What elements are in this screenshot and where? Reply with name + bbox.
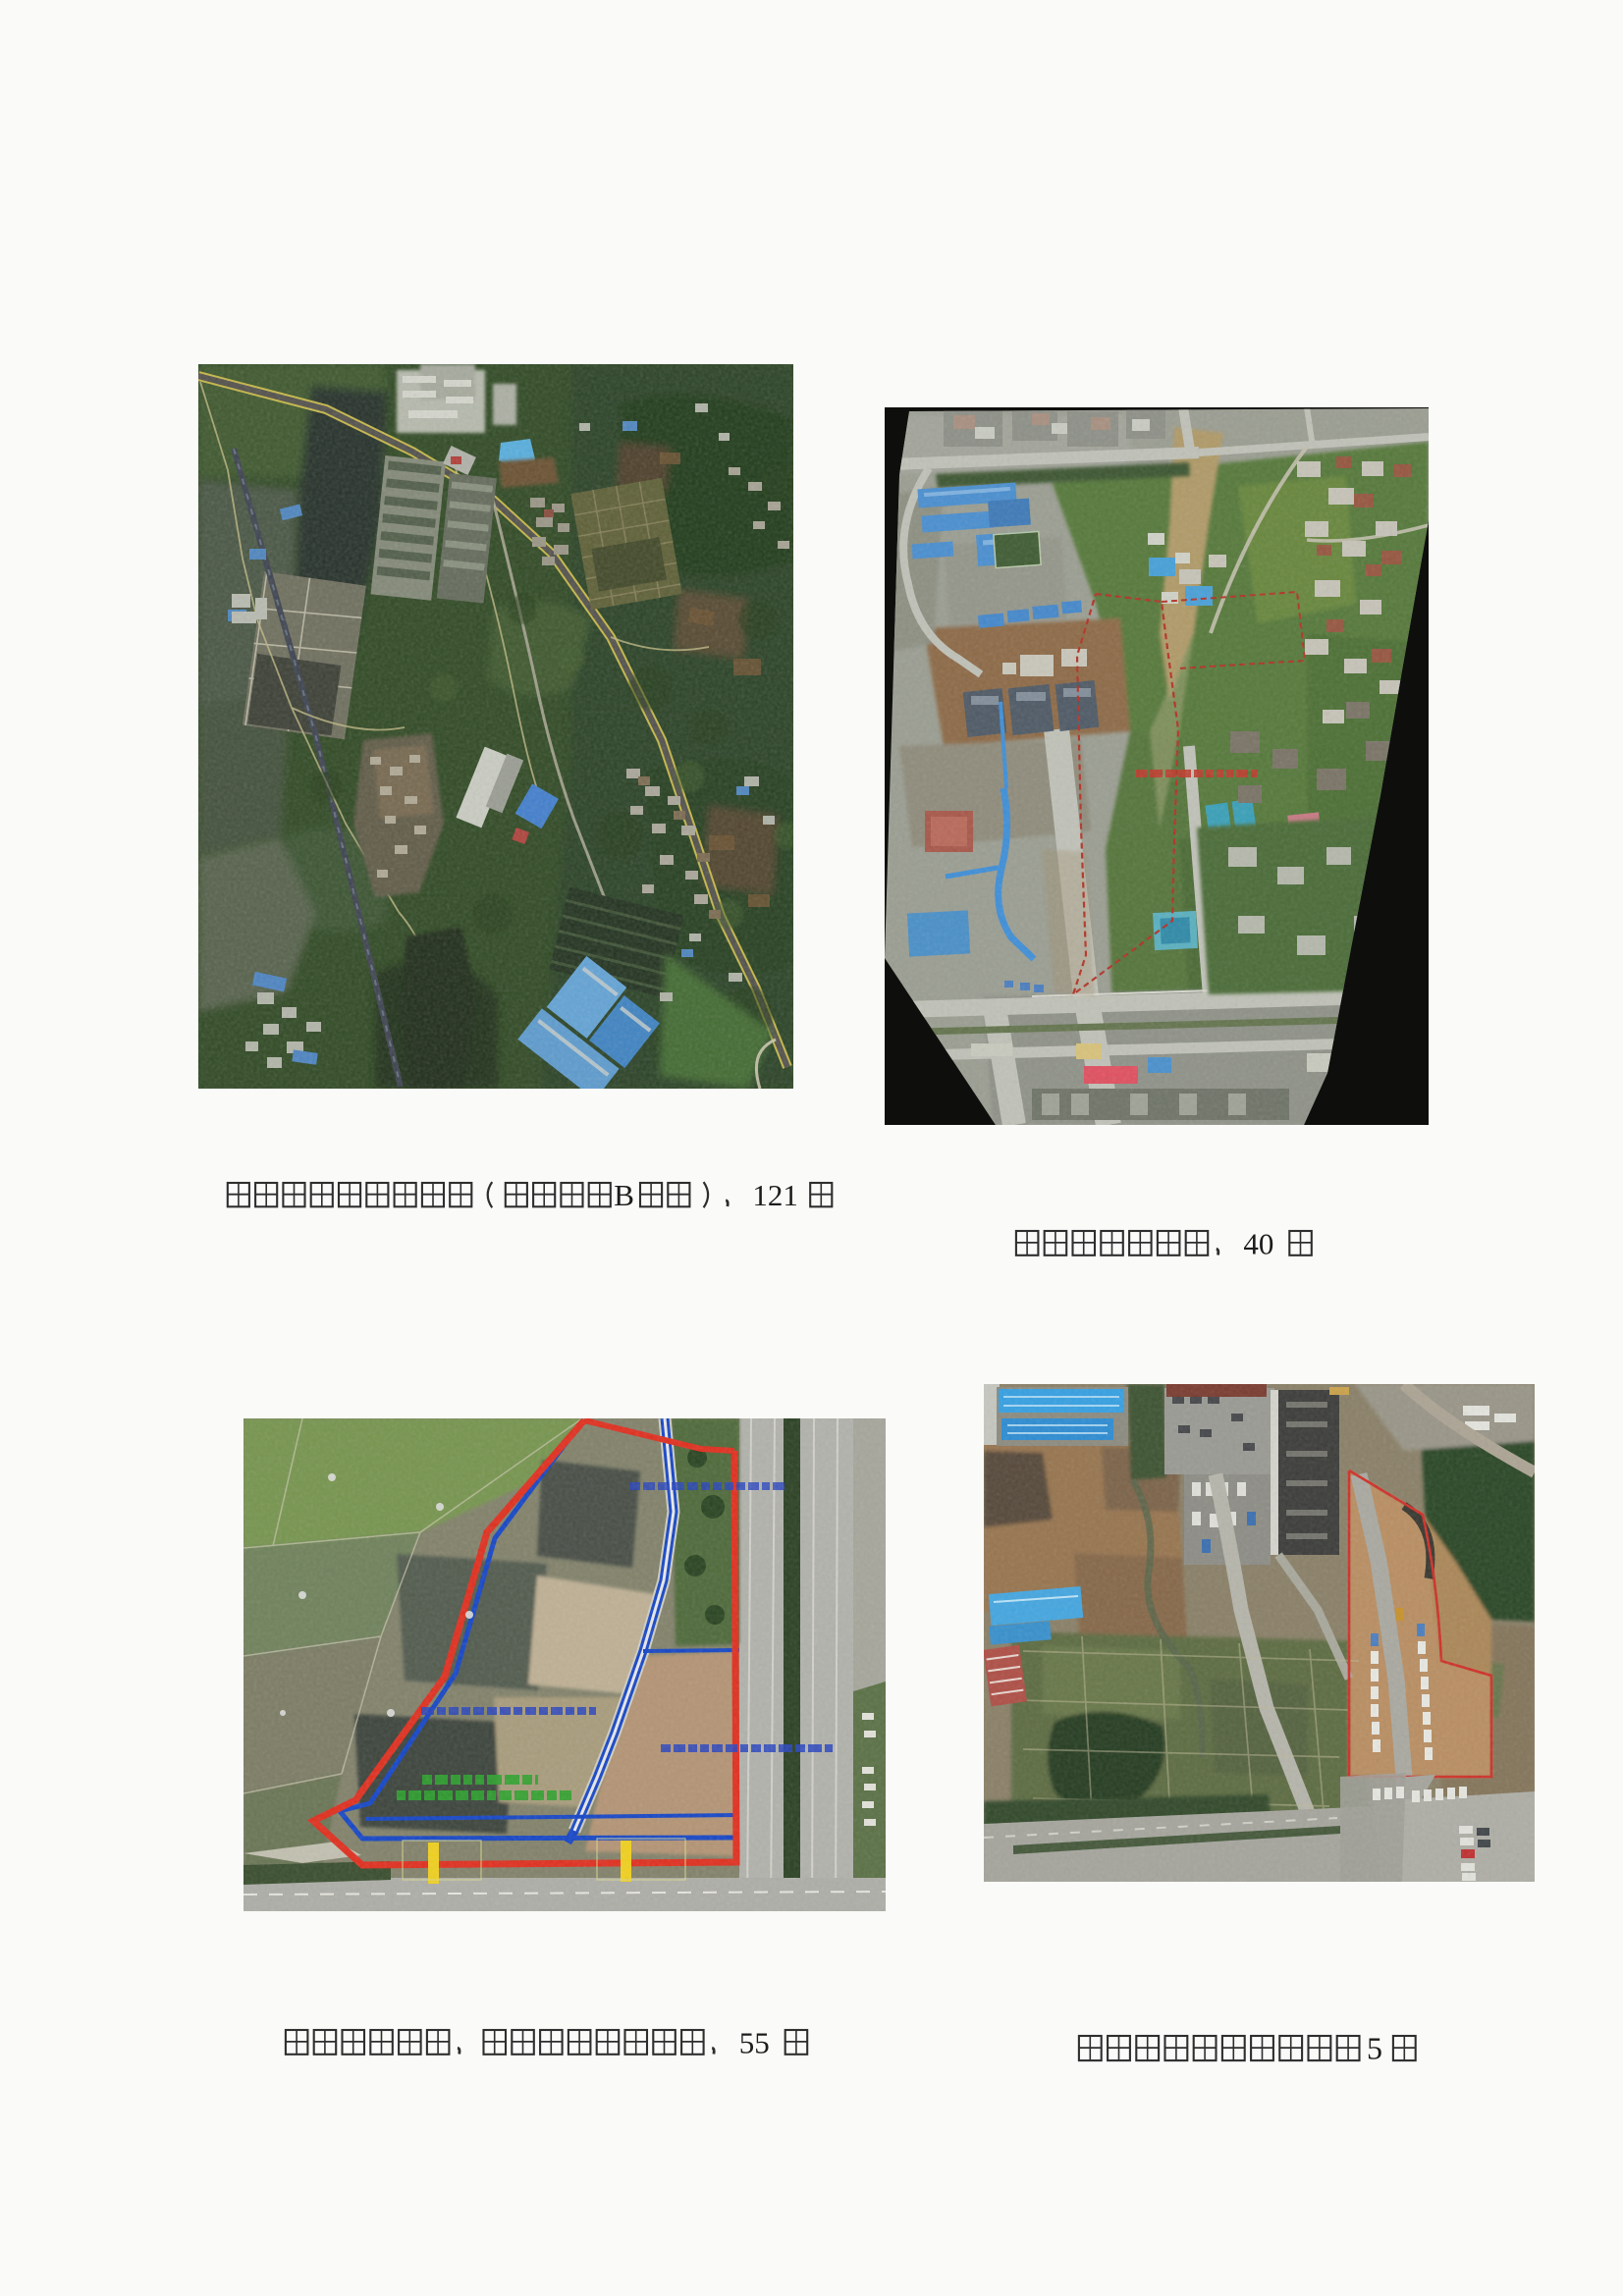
svg-text:55: 55: [739, 2028, 770, 2059]
svg-text:5: 5: [1367, 2034, 1382, 2066]
svg-text:121: 121: [752, 1181, 798, 1212]
svg-text:B: B: [614, 1181, 634, 1212]
svg-text:40: 40: [1243, 1229, 1273, 1260]
